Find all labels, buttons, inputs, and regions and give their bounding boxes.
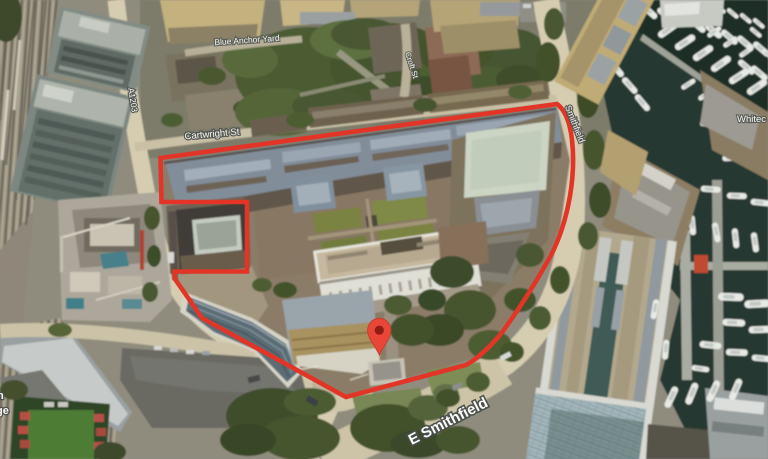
svg-text:Whitec: Whitec [737, 114, 766, 125]
svg-text:ge: ge [0, 405, 9, 417]
svg-text:n: n [0, 390, 4, 402]
